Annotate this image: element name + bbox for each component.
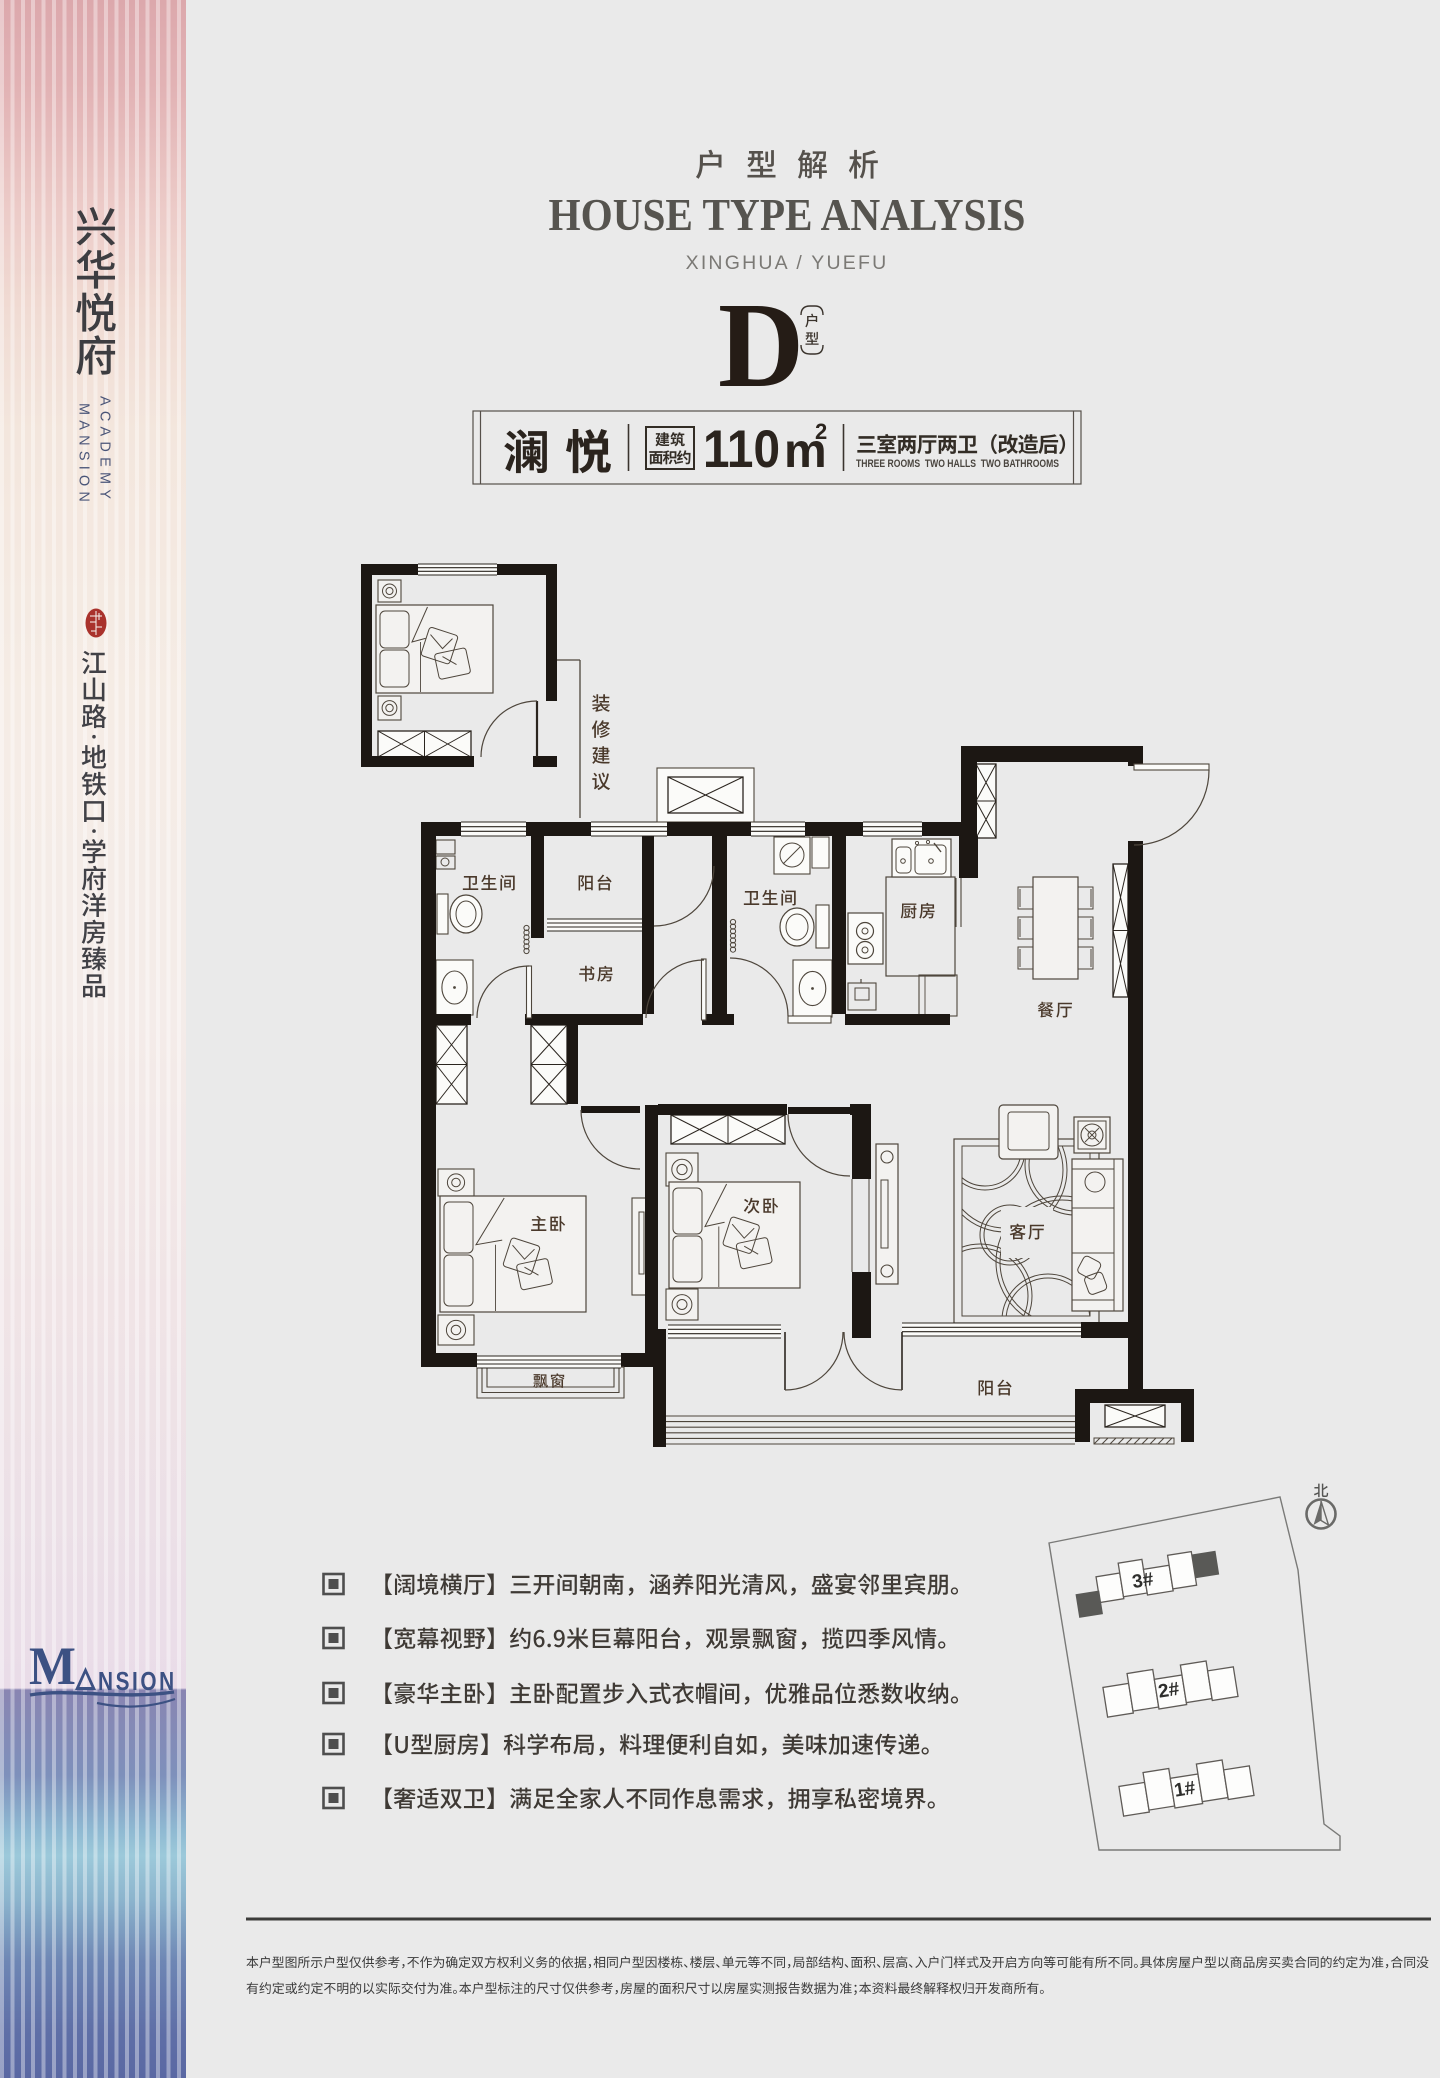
- svg-text:1#: 1#: [1173, 1778, 1198, 1802]
- svg-text:MANSION: MANSION: [76, 403, 92, 507]
- svg-text:3#: 3#: [1131, 1569, 1156, 1593]
- svg-text:D: D: [718, 278, 804, 413]
- svg-text:XINGHUA / YUEFU: XINGHUA / YUEFU: [686, 252, 889, 274]
- svg-text:M: M: [29, 1637, 76, 1696]
- svg-text:110: 110: [703, 420, 780, 479]
- svg-text:THREE ROOMS TWO HALLS TWO BA: THREE ROOMS TWO HALLS TWO BATHROOMS: [856, 458, 1059, 470]
- svg-text:2: 2: [815, 419, 827, 444]
- svg-text:ACADEMY: ACADEMY: [97, 396, 113, 504]
- svg-text:NSION: NSION: [98, 1667, 177, 1696]
- svg-text:HOUSE TYPE ANALYSIS: HOUSE TYPE ANALYSIS: [549, 189, 1026, 240]
- svg-text:2#: 2#: [1157, 1679, 1182, 1703]
